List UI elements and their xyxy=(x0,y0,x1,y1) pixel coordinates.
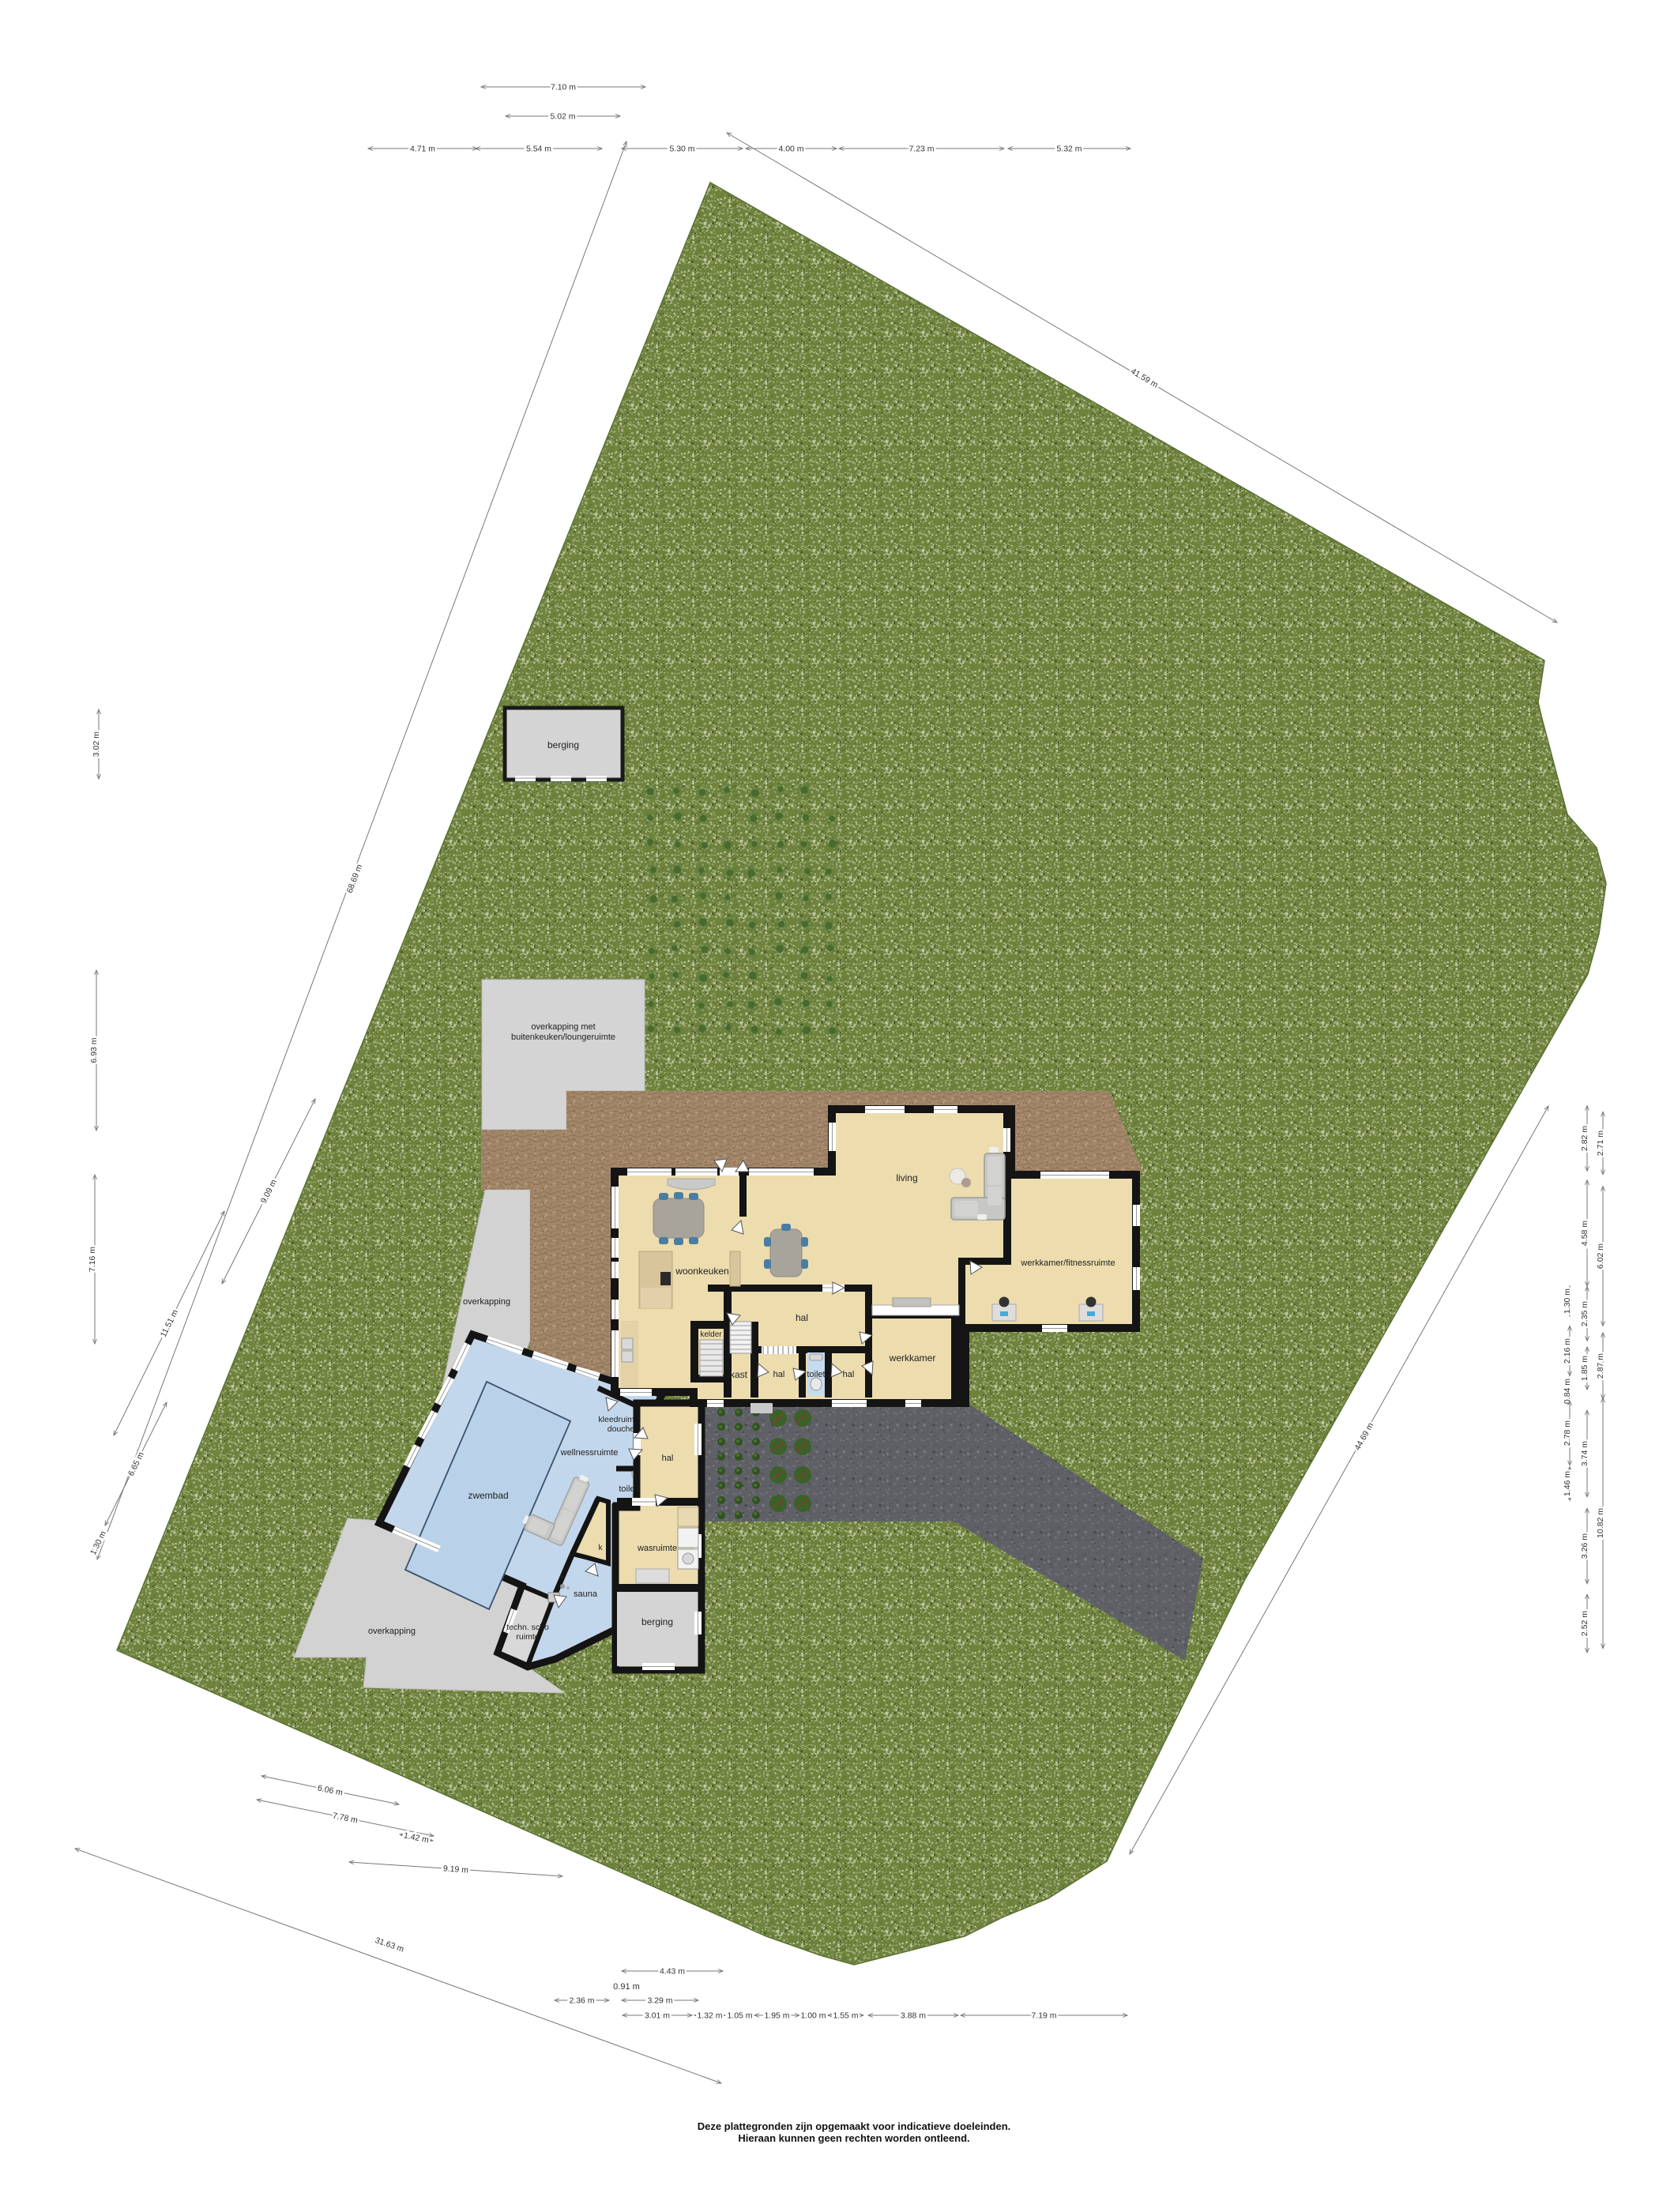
svg-text:2.78 m: 2.78 m xyxy=(1563,1420,1572,1446)
svg-text:0.91 m: 0.91 m xyxy=(613,1982,640,1992)
svg-text:1.00 m: 1.00 m xyxy=(800,2011,826,2021)
svg-text:hal: hal xyxy=(796,1312,808,1323)
svg-text:7.10 m: 7.10 m xyxy=(551,83,576,92)
svg-text:2.82 m: 2.82 m xyxy=(1580,1126,1589,1151)
svg-text:Deze plattegronden zijn opgema: Deze plattegronden zijn opgemaakt voor i… xyxy=(698,2120,1011,2132)
svg-text:7.23 m: 7.23 m xyxy=(908,145,934,154)
svg-text:hal: hal xyxy=(843,1370,855,1379)
svg-text:1.46 m: 1.46 m xyxy=(1563,1471,1572,1496)
svg-text:Hieraan kunnen geen rechten wo: Hieraan kunnen geen rechten worden ontle… xyxy=(738,2132,969,2144)
svg-text:1.32 m: 1.32 m xyxy=(697,2011,722,2021)
svg-text:overkapping met: overkapping met xyxy=(531,1022,595,1032)
svg-text:1.85 m: 1.85 m xyxy=(1580,1356,1589,1381)
svg-text:2.87 m: 2.87 m xyxy=(1596,1353,1605,1379)
svg-text:ruimte: ruimte xyxy=(516,1632,539,1642)
svg-text:5.32 m: 5.32 m xyxy=(1056,145,1082,154)
svg-text:4.71 m: 4.71 m xyxy=(410,145,435,154)
svg-text:2.16 m: 2.16 m xyxy=(1563,1338,1572,1364)
svg-text:2.35 m: 2.35 m xyxy=(1580,1301,1589,1326)
svg-text:living: living xyxy=(896,1172,917,1183)
svg-text:kelder: kelder xyxy=(700,1330,722,1339)
svg-text:douche: douche xyxy=(608,1424,635,1434)
svg-text:sauna: sauna xyxy=(574,1589,598,1599)
svg-text:1.30 m: 1.30 m xyxy=(1563,1288,1572,1314)
svg-text:berging: berging xyxy=(641,1616,673,1627)
svg-text:zwembad: zwembad xyxy=(468,1490,508,1501)
svg-text:2.52 m: 2.52 m xyxy=(1580,1611,1589,1636)
svg-text:6.93 m: 6.93 m xyxy=(89,1037,99,1063)
svg-text:3.02 m: 3.02 m xyxy=(92,732,101,757)
svg-text:4.00 m: 4.00 m xyxy=(778,145,803,154)
svg-text:werkkamer/fitnessruimte: werkkamer/fitnessruimte xyxy=(1020,1258,1115,1268)
svg-text:3.74 m: 3.74 m xyxy=(1580,1441,1589,1466)
svg-text:kast: kast xyxy=(730,1369,748,1380)
svg-text:5.30 m: 5.30 m xyxy=(669,145,694,154)
svg-text:buitenkeuken/loungeruimte: buitenkeuken/loungeruimte xyxy=(511,1033,615,1042)
svg-text:toilet: toilet xyxy=(807,1370,825,1379)
svg-text:wellnessruimte: wellnessruimte xyxy=(560,1448,619,1458)
svg-text:wasruimte: wasruimte xyxy=(637,1544,677,1553)
svg-text:werkkamer: werkkamer xyxy=(889,1352,936,1364)
svg-text:3.01 m: 3.01 m xyxy=(645,2011,670,2021)
svg-text:4.43 m: 4.43 m xyxy=(660,1967,685,1977)
svg-text:7.19 m: 7.19 m xyxy=(1031,2011,1056,2021)
svg-text:4.58 m: 4.58 m xyxy=(1580,1221,1589,1246)
svg-text:overkapping: overkapping xyxy=(368,1627,416,1636)
svg-text:9.19 m: 9.19 m xyxy=(443,1864,469,1875)
svg-text:hal: hal xyxy=(773,1370,785,1379)
svg-text:hal: hal xyxy=(662,1454,674,1463)
svg-text:woonkeuken: woonkeuken xyxy=(675,1266,728,1277)
svg-text:overkapping: overkapping xyxy=(463,1297,510,1307)
svg-text:3.29 m: 3.29 m xyxy=(647,1996,672,2006)
svg-text:5.02 m: 5.02 m xyxy=(550,112,575,122)
svg-text:7.16 m: 7.16 m xyxy=(88,1247,97,1272)
svg-text:10.82 m: 10.82 m xyxy=(1596,1508,1605,1538)
svg-text:5.54 m: 5.54 m xyxy=(526,145,551,154)
svg-text:0.84 m: 0.84 m xyxy=(1563,1379,1572,1404)
svg-text:3.88 m: 3.88 m xyxy=(901,2011,926,2021)
svg-text:1.05 m: 1.05 m xyxy=(727,2011,752,2021)
svg-text:berging: berging xyxy=(547,739,579,750)
svg-text:3.26 m: 3.26 m xyxy=(1580,1533,1589,1559)
svg-text:2.71 m: 2.71 m xyxy=(1596,1130,1605,1156)
svg-text:1.95 m: 1.95 m xyxy=(764,2011,789,2021)
svg-text:6.02 m: 6.02 m xyxy=(1596,1243,1605,1269)
svg-text:techn. scho: techn. scho xyxy=(506,1623,549,1632)
svg-text:2.36 m: 2.36 m xyxy=(569,1996,594,2006)
svg-text:1.55 m: 1.55 m xyxy=(833,2011,858,2021)
